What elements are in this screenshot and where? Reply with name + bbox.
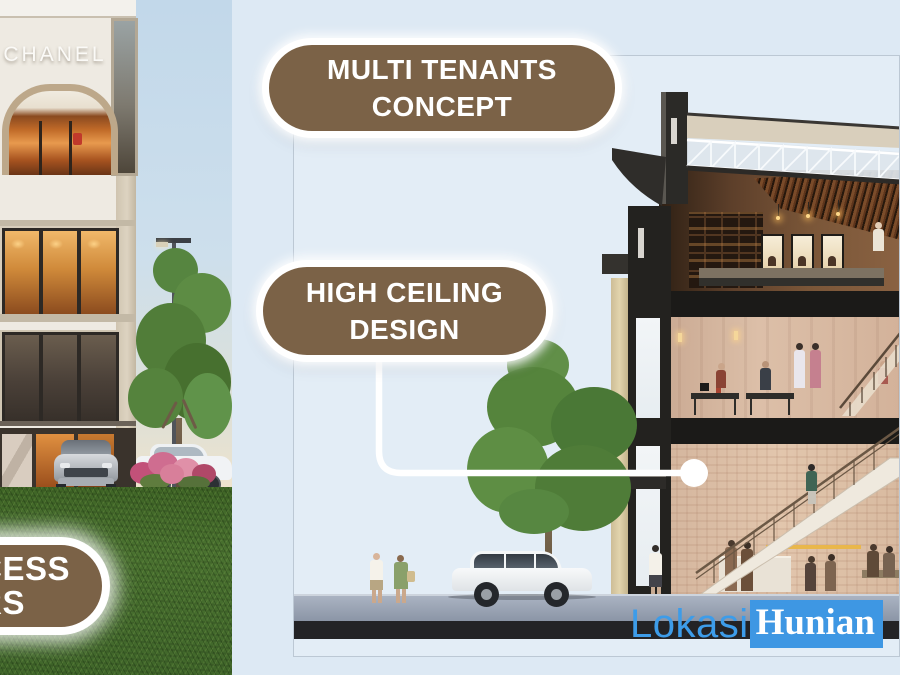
foliage-blob	[499, 489, 569, 534]
multi-tenants-badge: MULTI TENANTS CONCEPT	[262, 38, 622, 138]
car-body	[452, 568, 592, 591]
chanel-signage: CHANEL	[2, 38, 108, 72]
person-head	[808, 464, 815, 471]
badge-line: CESS	[0, 552, 70, 586]
window-glow	[87, 239, 101, 249]
window-glow	[49, 239, 63, 249]
window-glow	[11, 239, 25, 249]
lit-window	[78, 228, 119, 318]
lit-window	[40, 228, 80, 318]
person-shorts	[370, 580, 383, 590]
flower-bush	[130, 450, 216, 490]
car-wheel	[474, 582, 499, 607]
facade-parapet	[0, 0, 136, 18]
person-body	[649, 553, 662, 575]
person-dress	[394, 562, 408, 589]
person-legs	[808, 491, 816, 504]
street-tree	[459, 339, 649, 534]
foliage-blob	[183, 373, 232, 439]
car-grille	[64, 468, 108, 477]
person-leg	[396, 589, 400, 603]
car-wheel	[544, 582, 569, 607]
dark-window	[78, 332, 119, 424]
partial-access-badge: CESS RS	[0, 537, 110, 635]
badge-line: CONCEPT	[372, 88, 512, 125]
lit-window	[2, 228, 42, 318]
person-leg	[372, 590, 376, 603]
badge-line: RS	[0, 586, 25, 620]
third-floor-windows	[0, 330, 116, 422]
person-skirt	[649, 575, 662, 587]
badge-line: DESIGN	[349, 311, 459, 348]
person-head	[373, 553, 380, 560]
dark-window	[40, 332, 80, 424]
ground-awning	[0, 421, 136, 426]
storefront-mullion	[69, 121, 72, 175]
street-lamp-head	[156, 242, 168, 247]
person-leg	[402, 589, 406, 603]
pedestrian-with-bag	[394, 555, 420, 605]
shopping-bag	[407, 571, 415, 582]
pedestrian-near-building	[649, 545, 663, 601]
badge-line: HIGH CEILING	[306, 274, 503, 311]
foliage-blob	[128, 368, 183, 428]
person-leg	[378, 590, 382, 603]
chanel-building-facade: CHANEL	[0, 0, 136, 490]
dark-window	[2, 332, 42, 424]
white-suv	[452, 551, 592, 598]
car-pillar	[504, 554, 506, 569]
display-garment	[73, 133, 82, 145]
lokasihunian-watermark: Lokasi Hunian	[630, 601, 883, 647]
slide-canvas: CHANEL	[0, 0, 900, 675]
glass-door	[2, 434, 32, 488]
parked-silver-car	[54, 440, 118, 490]
second-floor-windows	[0, 226, 116, 314]
person-head	[652, 545, 659, 552]
person-body	[370, 560, 383, 580]
car-windows	[474, 554, 558, 569]
person-on-stairs	[806, 464, 818, 504]
pedestrian-pair	[370, 553, 396, 603]
person-body	[806, 471, 817, 491]
badge-line: MULTI TENANTS	[327, 51, 557, 88]
car-shadow	[448, 594, 596, 600]
floor-slab	[0, 314, 136, 322]
person-head	[397, 555, 404, 562]
flower-blob	[160, 464, 184, 484]
storefront-mullion	[39, 121, 42, 175]
arched-storefront	[2, 84, 118, 175]
wheel-hub	[481, 589, 492, 600]
high-ceiling-badge: HIGH CEILING DESIGN	[256, 260, 553, 362]
car-pillar	[534, 554, 536, 569]
watermark-hunian: Hunian	[750, 600, 883, 648]
wheel-hub	[551, 589, 562, 600]
watermark-lokasi: Lokasi	[630, 602, 749, 647]
